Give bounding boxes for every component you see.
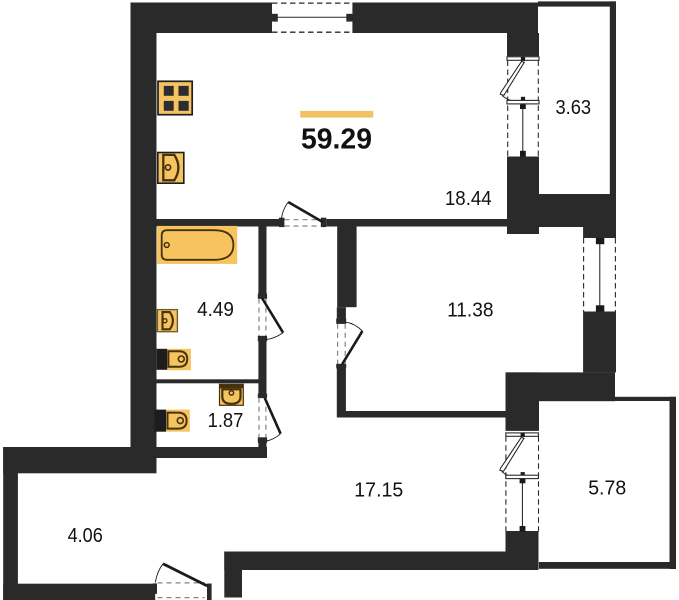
svg-text:59.29: 59.29: [301, 124, 372, 156]
svg-text:17.15: 17.15: [354, 478, 403, 501]
svg-text:5.78: 5.78: [588, 477, 626, 500]
svg-text:1.87: 1.87: [208, 409, 244, 432]
svg-text:3.63: 3.63: [555, 96, 591, 119]
svg-text:18.44: 18.44: [445, 187, 492, 210]
svg-text:4.49: 4.49: [197, 298, 234, 321]
svg-text:11.38: 11.38: [447, 299, 493, 322]
svg-text:4.06: 4.06: [68, 524, 103, 547]
